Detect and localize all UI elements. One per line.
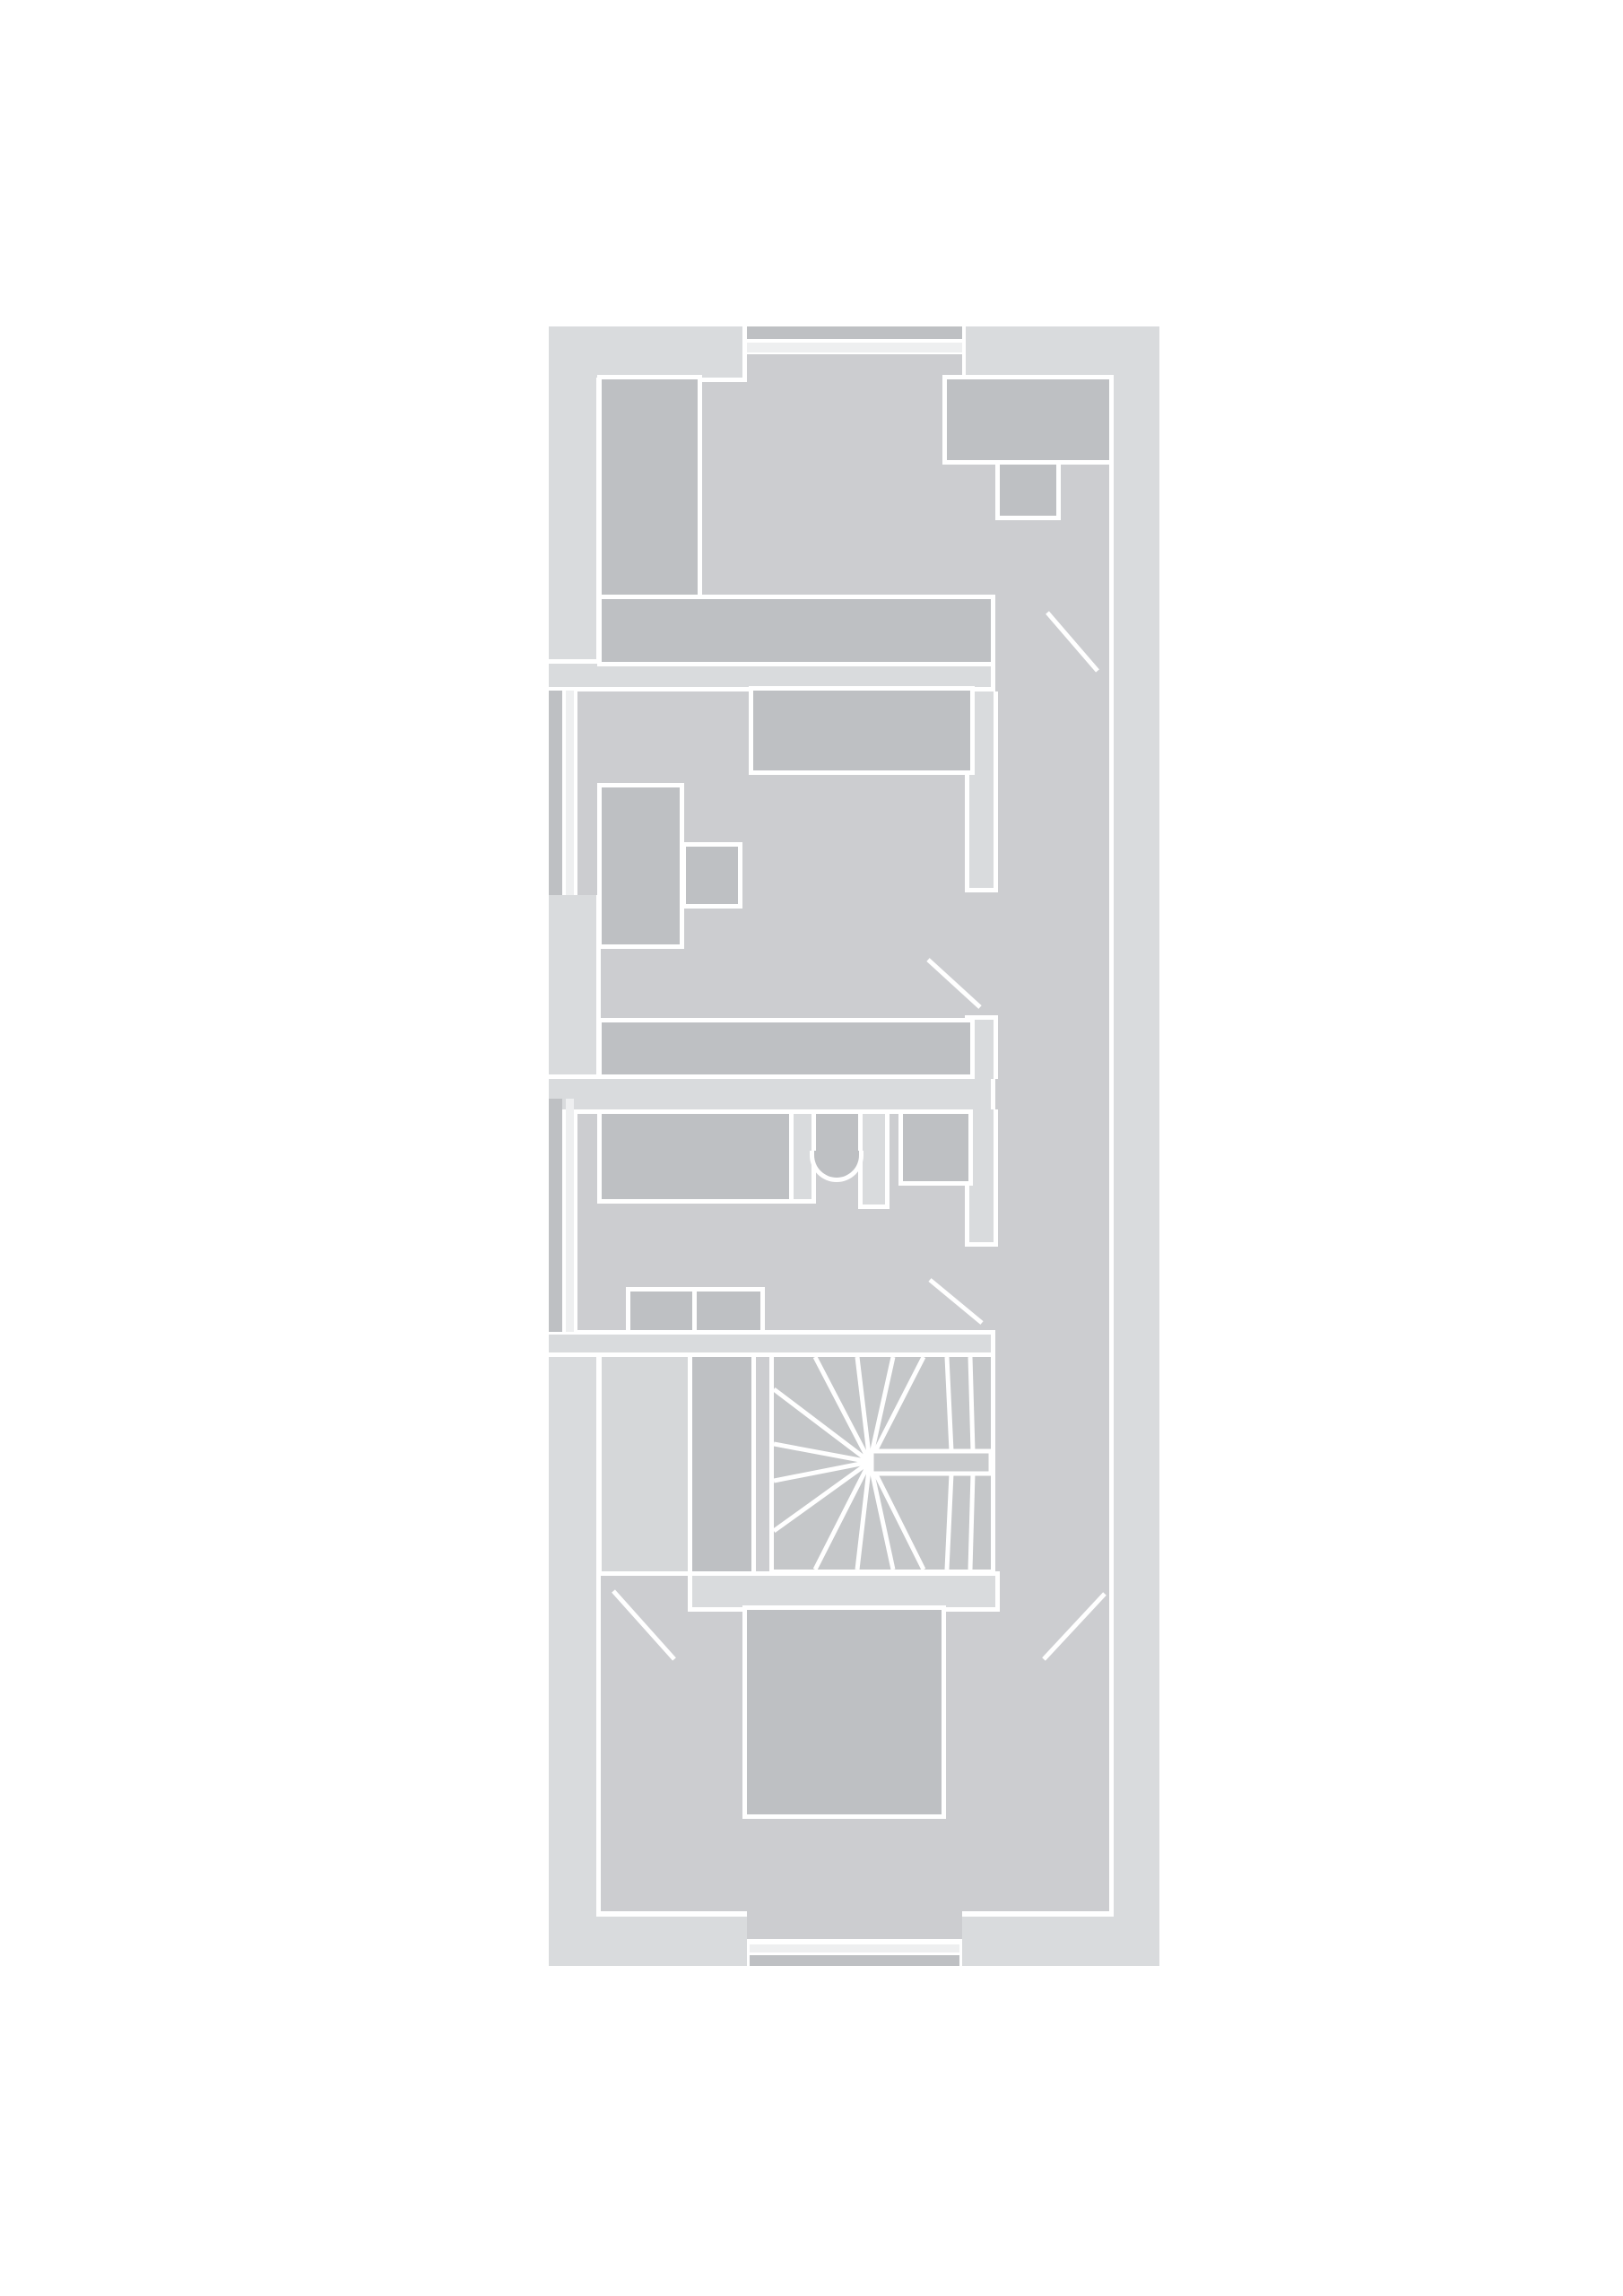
door-swing-bedroom1 (1047, 613, 1098, 671)
door-swing-bedroom3-left (613, 1591, 674, 1659)
door-swing-bedroom3-right (1044, 1594, 1105, 1659)
floor-plan-canvas (0, 0, 1623, 2296)
door-swing-overlay (0, 0, 1623, 2296)
door-swing-bathroom (930, 1280, 982, 1323)
door-swing-bedroom2 (928, 960, 980, 1007)
